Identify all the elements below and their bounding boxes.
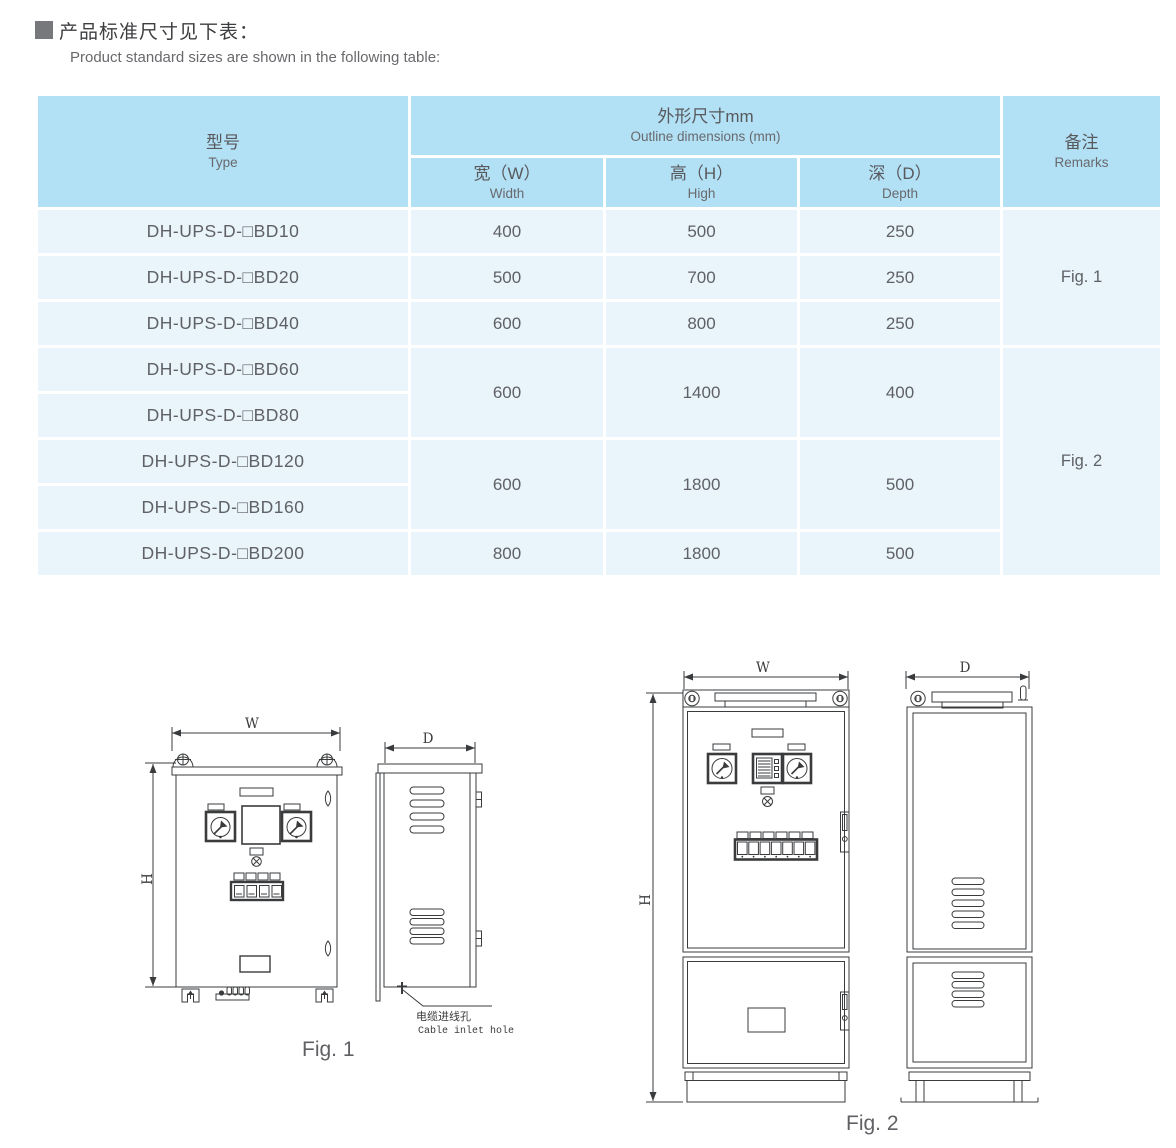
depth-cell: 250 [799,255,1002,301]
lifting-eye-icon [911,691,925,705]
remarks-fig1-cell: Fig. 1 [1002,209,1162,347]
type-cell: DH-UPS-D-□BD80 [37,393,410,439]
high-cell: 700 [605,255,799,301]
width-cell: 500 [410,255,605,301]
gauge-icon [282,804,311,841]
door-lock-icon [325,791,330,806]
header-width-en: Width [411,186,603,203]
width-cell-merged: 600 [410,347,605,439]
width-cell-merged: 600 [410,439,605,531]
cable-inlet-callout [397,982,492,1006]
header-high-cn: 高（H） [606,163,797,186]
gauge-icon [708,744,736,783]
header-type: 型号 Type [37,95,410,209]
gauge-icon [206,804,235,841]
nameplate-icon [748,1008,785,1032]
high-cell: 1800 [605,531,799,577]
section-bullet-icon [35,21,53,39]
fig1-d-label: D [423,731,434,747]
high-cell: 500 [605,209,799,255]
fig2-d-label: D [960,660,971,676]
cable-inlet-label-cn: 电缆进线孔 [416,1009,471,1023]
depth-cell-merged: 400 [799,347,1002,439]
depth-cell: 500 [799,531,1002,577]
header-depth-cn: 深（D） [800,163,1000,186]
type-cell: DH-UPS-D-□BD20 [37,255,410,301]
terminal-block-icon [735,832,817,860]
fig2-side-view [901,686,1038,1102]
high-cell: 800 [605,301,799,347]
fig2-front-view [683,690,849,1102]
gauge-icon [783,744,811,783]
width-cell: 800 [410,531,605,577]
cable-inlet-label-en: Cable inlet hole [418,1025,514,1037]
fig1-mounting-ear-icon [173,754,337,767]
header-type-cn: 型号 [38,132,408,155]
type-cell: DH-UPS-D-□BD160 [37,485,410,531]
cable-gland-icon [216,987,250,1000]
fig2-h-label: H [638,894,654,906]
fig1-h-label: H [140,873,156,885]
header-high: 高（H） High [605,157,799,209]
panel-window-icon [242,806,280,844]
fig1-front-view [172,767,342,1002]
page-title: 产品标准尺寸见下表： [59,17,259,44]
type-cell: DH-UPS-D-□BD60 [37,347,410,393]
high-cell-merged: 1400 [605,347,799,439]
datasheet-page: 产品标准尺寸见下表： Product standard sizes are sh… [0,0,1176,1148]
header-depth: 深（D） Depth [799,157,1002,209]
header-depth-en: Depth [800,186,1000,203]
type-cell: DH-UPS-D-□BD120 [37,439,410,485]
depth-cell: 250 [799,209,1002,255]
louver-vent-icon [952,972,984,1007]
louver-vent-icon [952,878,984,929]
header-width: 宽（W） Width [410,157,605,209]
header-outline-en: Outline dimensions (mm) [411,129,1000,146]
mounting-foot-icon [182,989,199,1002]
header-remarks-en: Remarks [1003,155,1160,172]
header-remarks-cn: 备注 [1003,132,1160,155]
header-type-en: Type [38,155,408,172]
header-high-en: High [606,186,797,203]
terminal-block-icon [231,873,283,900]
fig2-drawing: W H D [630,655,1060,1115]
controller-display-icon [753,754,782,783]
wall-flange [376,773,380,1001]
cabinet-base [901,1072,1038,1102]
header-outline: 外形尺寸mm Outline dimensions (mm) [410,95,1002,157]
indicator-lamp-icon [761,787,774,807]
cabinet-base [685,1072,847,1102]
type-cell: DH-UPS-D-□BD40 [37,301,410,347]
fig2-caption: Fig. 2 [846,1112,899,1136]
louver-vent-icon [410,787,444,944]
page-subtitle: Product standard sizes are shown in the … [70,49,440,66]
fig2-w-label: W [756,660,770,676]
header-remarks: 备注 Remarks [1002,95,1162,209]
header-width-cn: 宽（W） [411,163,603,186]
indicator-lamp-icon [250,848,263,866]
remarks-fig2-cell: Fig. 2 [1002,347,1162,577]
depth-cell-merged: 500 [799,439,1002,531]
hinge-pin-icon [1018,686,1028,700]
size-table: 型号 Type 外形尺寸mm Outline dimensions (mm) 备… [35,93,1163,578]
nameplate-icon [240,956,270,972]
type-cell: DH-UPS-D-□BD10 [37,209,410,255]
width-cell: 600 [410,301,605,347]
type-cell: DH-UPS-D-□BD200 [37,531,410,577]
header-outline-cn: 外形尺寸mm [411,106,1000,129]
fig1-caption: Fig. 1 [302,1038,355,1062]
depth-cell: 250 [799,301,1002,347]
fig1-w-label: W [245,716,259,732]
mounting-foot-icon [316,989,333,1002]
width-cell: 400 [410,209,605,255]
hinge-icon [476,792,482,946]
door-lock-icon [325,941,330,956]
high-cell-merged: 1800 [605,439,799,531]
fig1-drawing: W H D 电缆进线孔 Cable inlet hole [140,690,520,1060]
fig1-side-view [376,764,492,1006]
